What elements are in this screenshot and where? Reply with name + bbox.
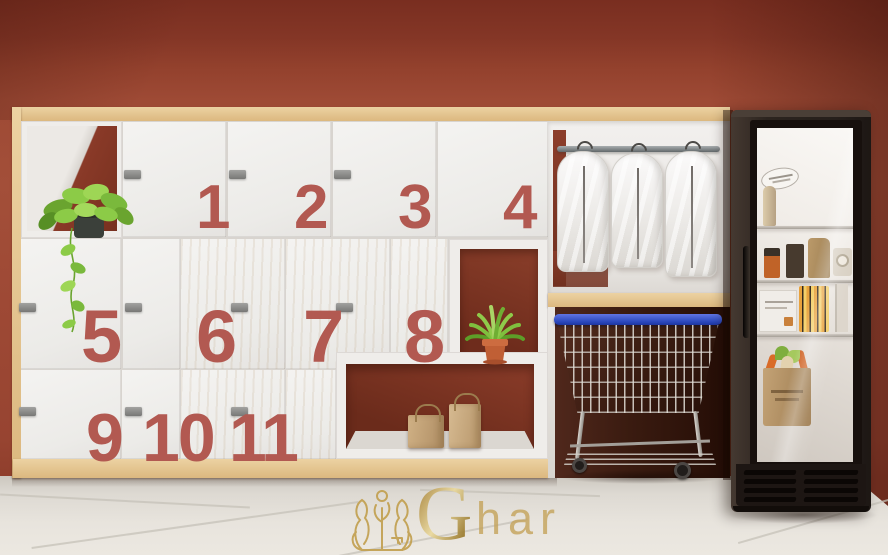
- sign-text-line: [772, 178, 790, 183]
- fridge-shelf: [757, 226, 853, 229]
- cart-caster: [674, 462, 691, 479]
- cart-rim: [554, 314, 722, 325]
- cart-basket: [556, 325, 720, 413]
- locker-number-8: 8: [404, 300, 443, 374]
- lion-emblem-icon: [348, 482, 416, 554]
- plant-vine: [70, 228, 74, 332]
- locker-number-7: 7: [303, 300, 342, 374]
- left-wall-corner: [0, 0, 250, 120]
- cabinet-top-trim: [12, 107, 730, 121]
- dark-box: [786, 244, 804, 278]
- door-handle[interactable]: [125, 407, 142, 416]
- locker-number-4: 4: [503, 177, 535, 239]
- vent-slat: [743, 479, 796, 484]
- terracotta-pot: [482, 339, 508, 365]
- locker-number-2: 2: [294, 177, 326, 239]
- watermark-text: har: [476, 496, 562, 541]
- tin-dial: [836, 254, 849, 267]
- bag-print: [775, 398, 799, 401]
- carton-text-line: [765, 301, 793, 303]
- cabinet-left-trim: [12, 107, 21, 478]
- paper-bag-large: [449, 404, 481, 448]
- milk-bottle: [777, 184, 790, 226]
- carton-stamp: [784, 317, 793, 326]
- vent-slat: [743, 488, 796, 493]
- pothos-plant: [28, 166, 136, 338]
- garment-bag[interactable]: [557, 151, 609, 272]
- white-carton: [759, 290, 797, 332]
- watermark-logo: G har: [344, 460, 644, 555]
- locker-number-9: 9: [86, 404, 122, 472]
- fridge-shelf: [757, 280, 853, 283]
- locker-number-6: 6: [196, 300, 235, 374]
- fridge-handle[interactable]: [743, 246, 750, 338]
- display-fridge: [731, 110, 871, 512]
- fridge-shelf: [757, 334, 853, 337]
- potted-plant: [463, 295, 527, 365]
- bag-print: [771, 390, 803, 393]
- vent-slat: [803, 497, 858, 502]
- fridge-vent-grille: [736, 464, 866, 506]
- laundry-cart[interactable]: [552, 310, 728, 480]
- fridge-top-edge: [731, 110, 871, 117]
- jar: [764, 248, 780, 278]
- wardrobe-shelf-trim: [548, 293, 730, 307]
- watermark-initial: G: [416, 474, 472, 552]
- door-handle[interactable]: [334, 170, 351, 179]
- striped-carrier: [799, 286, 829, 332]
- locker-number-1: 1: [196, 177, 228, 239]
- locker-number-3: 3: [398, 177, 430, 239]
- vent-slat: [803, 470, 858, 475]
- tall-box: [835, 284, 848, 332]
- cart-crossbar: [570, 440, 710, 448]
- garment-bag[interactable]: [665, 151, 717, 277]
- fridge-glass-door[interactable]: [757, 128, 853, 462]
- wardrobe-compartment: [548, 121, 730, 295]
- round-tin: [833, 248, 852, 276]
- carton-text-line: [765, 307, 787, 309]
- plant-leaves: [467, 307, 523, 341]
- milk-bottle: [763, 186, 776, 226]
- door-handle[interactable]: [19, 407, 36, 416]
- fridge-base: [733, 506, 869, 512]
- locker-number-10: 10: [142, 404, 214, 472]
- vent-slat: [743, 470, 796, 475]
- paper-bag-small: [408, 415, 444, 448]
- vent-slat: [803, 479, 858, 484]
- kraft-pouch: [808, 238, 830, 278]
- locker-number-11: 11: [229, 404, 297, 472]
- door-handle[interactable]: [229, 170, 246, 179]
- grocery-bag: [763, 368, 811, 426]
- vent-slat: [743, 497, 796, 502]
- garment-bag[interactable]: [611, 153, 663, 268]
- vent-slat: [803, 488, 858, 493]
- laundry-room-render: 1 2 3 4 5 6 7 8 9 10 11: [0, 0, 888, 555]
